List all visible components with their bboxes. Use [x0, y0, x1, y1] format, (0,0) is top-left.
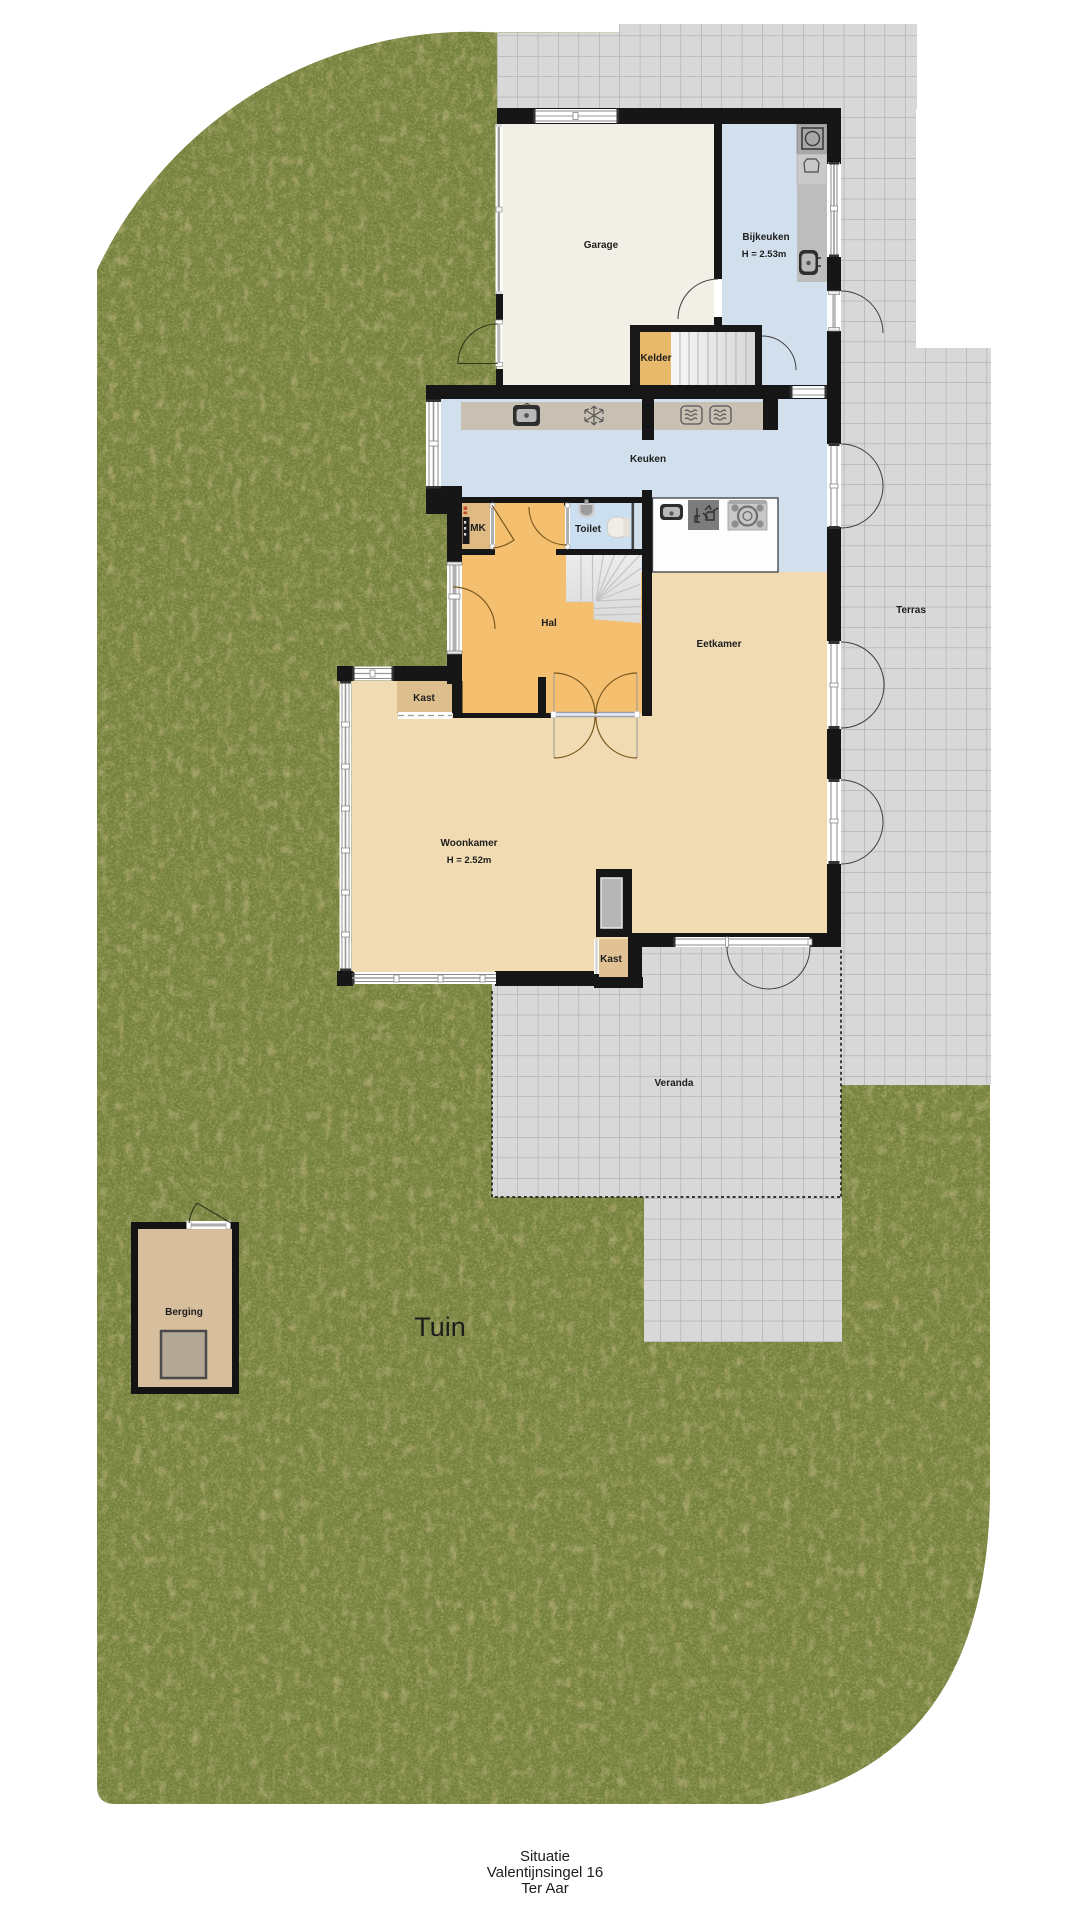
svg-text:H = 2.52m: H = 2.52m — [447, 855, 492, 866]
svg-text:Toilet: Toilet — [575, 524, 602, 535]
svg-text:MK: MK — [470, 523, 486, 534]
svg-text:Terras: Terras — [896, 605, 926, 616]
svg-text:Situatie: Situatie — [520, 1848, 570, 1865]
svg-text:Eetkamer: Eetkamer — [696, 639, 741, 650]
svg-text:Kast: Kast — [413, 693, 435, 704]
svg-text:Tuin: Tuin — [414, 1312, 466, 1342]
svg-text:Woonkamer: Woonkamer — [440, 838, 497, 849]
svg-text:Hal: Hal — [541, 618, 557, 629]
svg-text:Garage: Garage — [584, 240, 619, 251]
svg-text:Valentijnsingel 16: Valentijnsingel 16 — [487, 1864, 603, 1881]
svg-text:Berging: Berging — [165, 1307, 203, 1318]
svg-text:Kast: Kast — [600, 954, 622, 965]
svg-text:Kelder: Kelder — [640, 353, 671, 364]
svg-text:H = 2.53m: H = 2.53m — [742, 249, 787, 260]
svg-text:Ter Aar: Ter Aar — [521, 1880, 569, 1897]
svg-text:Veranda: Veranda — [655, 1078, 694, 1089]
svg-text:Bijkeuken: Bijkeuken — [742, 232, 789, 243]
svg-text:Keuken: Keuken — [630, 454, 666, 465]
